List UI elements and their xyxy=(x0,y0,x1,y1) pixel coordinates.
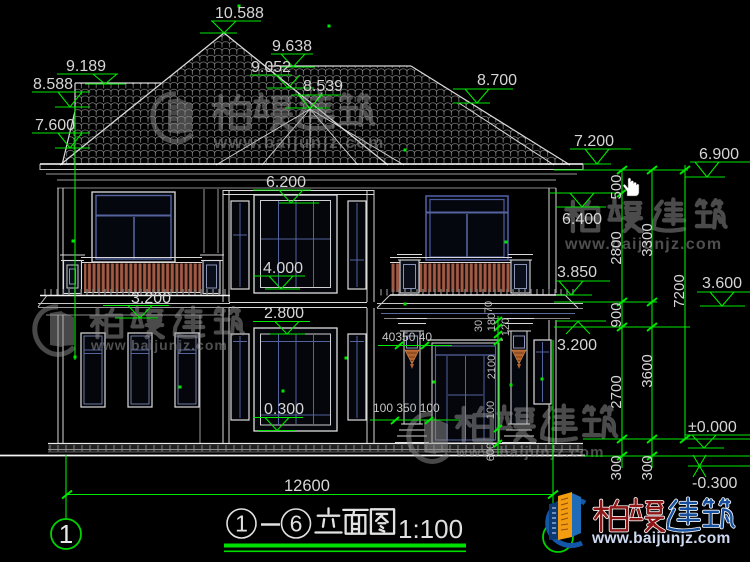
svg-text:2100: 2100 xyxy=(486,355,498,379)
svg-text:12600: 12600 xyxy=(284,477,330,495)
svg-text:3.200: 3.200 xyxy=(131,290,171,307)
svg-text:3.200: 3.200 xyxy=(557,337,597,354)
svg-text:2800: 2800 xyxy=(608,231,625,264)
svg-text:600: 600 xyxy=(485,443,497,461)
svg-text:6.200: 6.200 xyxy=(266,174,306,191)
svg-text:10.588: 10.588 xyxy=(215,5,264,22)
svg-text:0.300: 0.300 xyxy=(264,401,304,418)
svg-text:3.850: 3.850 xyxy=(557,264,597,281)
svg-text:8.539: 8.539 xyxy=(303,78,343,95)
svg-text:120: 120 xyxy=(500,318,512,336)
svg-text:9.052: 9.052 xyxy=(251,59,291,76)
svg-text:300: 300 xyxy=(608,455,625,480)
svg-text:2700: 2700 xyxy=(608,375,625,408)
svg-text:70: 70 xyxy=(483,301,495,313)
svg-text:9.638: 9.638 xyxy=(272,38,312,55)
svg-text:1: 1 xyxy=(59,519,73,549)
svg-text:100 350 100: 100 350 100 xyxy=(373,401,440,415)
svg-text:www.baijunjz.com: www.baijunjz.com xyxy=(455,444,605,461)
svg-text:3600: 3600 xyxy=(639,354,656,387)
svg-text:3.600: 3.600 xyxy=(702,275,742,292)
svg-text:3300: 3300 xyxy=(639,223,656,256)
svg-text:9.189: 9.189 xyxy=(66,58,106,75)
svg-text:300: 300 xyxy=(639,455,656,480)
svg-text:40350 40: 40350 40 xyxy=(382,330,432,344)
svg-text:6.400: 6.400 xyxy=(562,211,602,228)
svg-text:900: 900 xyxy=(608,302,625,327)
svg-text:4.000: 4.000 xyxy=(263,260,303,277)
svg-text:8.588: 8.588 xyxy=(33,76,73,93)
svg-text:7.200: 7.200 xyxy=(574,133,614,150)
svg-text:500: 500 xyxy=(608,174,625,199)
svg-text:-0.300: -0.300 xyxy=(692,475,737,492)
svg-text:www.baijunjz.com: www.baijunjz.com xyxy=(213,133,385,152)
svg-text:7.600: 7.600 xyxy=(35,117,75,134)
svg-text:±0.000: ±0.000 xyxy=(688,419,737,436)
svg-text:6: 6 xyxy=(290,511,303,537)
svg-text:www.baijunjz.com: www.baijunjz.com xyxy=(591,530,731,547)
svg-text:2.800: 2.800 xyxy=(264,305,304,322)
svg-text:8.700: 8.700 xyxy=(477,72,517,89)
svg-text:1: 1 xyxy=(235,511,248,537)
svg-text:www.baijunjz.com: www.baijunjz.com xyxy=(90,337,228,353)
svg-text:30: 30 xyxy=(473,320,485,332)
svg-text:7200: 7200 xyxy=(671,274,688,307)
svg-text:100: 100 xyxy=(485,401,497,419)
svg-text:180: 180 xyxy=(486,313,498,331)
svg-text:6.900: 6.900 xyxy=(699,146,739,163)
svg-text:1:100: 1:100 xyxy=(398,514,463,544)
